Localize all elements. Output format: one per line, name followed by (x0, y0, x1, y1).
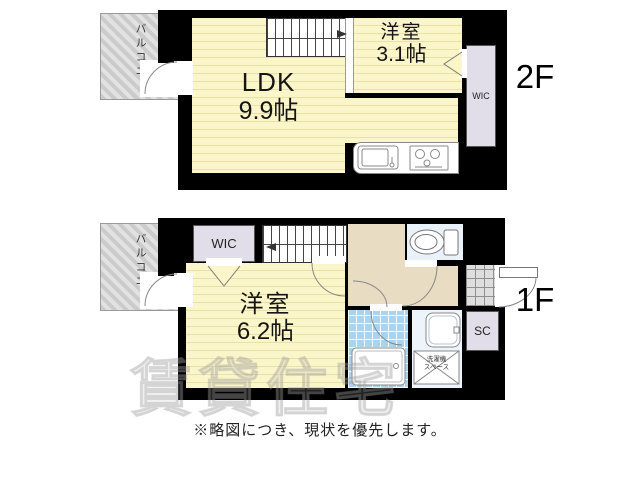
bedroom-1f-name: 洋室 (186, 292, 345, 319)
floor-label-2f: 2F (505, 58, 565, 96)
kitchen-area (345, 98, 458, 143)
bedroom-1f-door-gap (312, 256, 345, 264)
shoe-closet-label: SC (474, 324, 491, 338)
wic-1f-label: WIC (211, 236, 236, 251)
floor-label-1f: 1F (505, 281, 565, 319)
toilet-room (407, 224, 463, 260)
bathroom-door-gap (370, 304, 402, 311)
watermark: 賃貸住宅 (130, 338, 402, 428)
washroom (412, 310, 462, 388)
kitchen-counter (353, 142, 459, 174)
balcony-2f-door-gap (174, 61, 193, 95)
ldk-label: LDK 9.9帖 (192, 68, 345, 125)
bedroom-2f-label: 洋室 3.1帖 (353, 22, 450, 67)
hallway-lower (348, 266, 458, 306)
ldk-name: LDK (192, 68, 345, 97)
wic-1f-opening (206, 258, 242, 266)
wic-2f: WIC (466, 45, 496, 147)
wic-2f-label: WIC (472, 91, 490, 101)
balcony-1f-door-swing-area (140, 272, 178, 309)
entrance (466, 265, 497, 306)
laundry-space-label: 洗濯機 スペース (414, 356, 459, 372)
entrance-door-leaf (499, 267, 538, 278)
hallway-upper (348, 224, 405, 266)
toilet-door-gap (405, 260, 437, 267)
wic-2f-opening (459, 49, 467, 78)
balcony-2f-door-swing-area (140, 60, 178, 97)
bedroom-2f-size: 3.1帖 (353, 43, 450, 67)
bedroom-2f-name: 洋室 (353, 22, 450, 43)
stairs-2f (266, 18, 347, 57)
ldk-size: 9.9帖 (192, 97, 345, 125)
floorplan-canvas: バルコニー WIC LDK 9.9帖 洋室 3.1帖 2F バルコニー WIC … (0, 0, 640, 480)
wic-1f: WIC (193, 225, 255, 262)
shoe-closet: SC (466, 311, 499, 351)
